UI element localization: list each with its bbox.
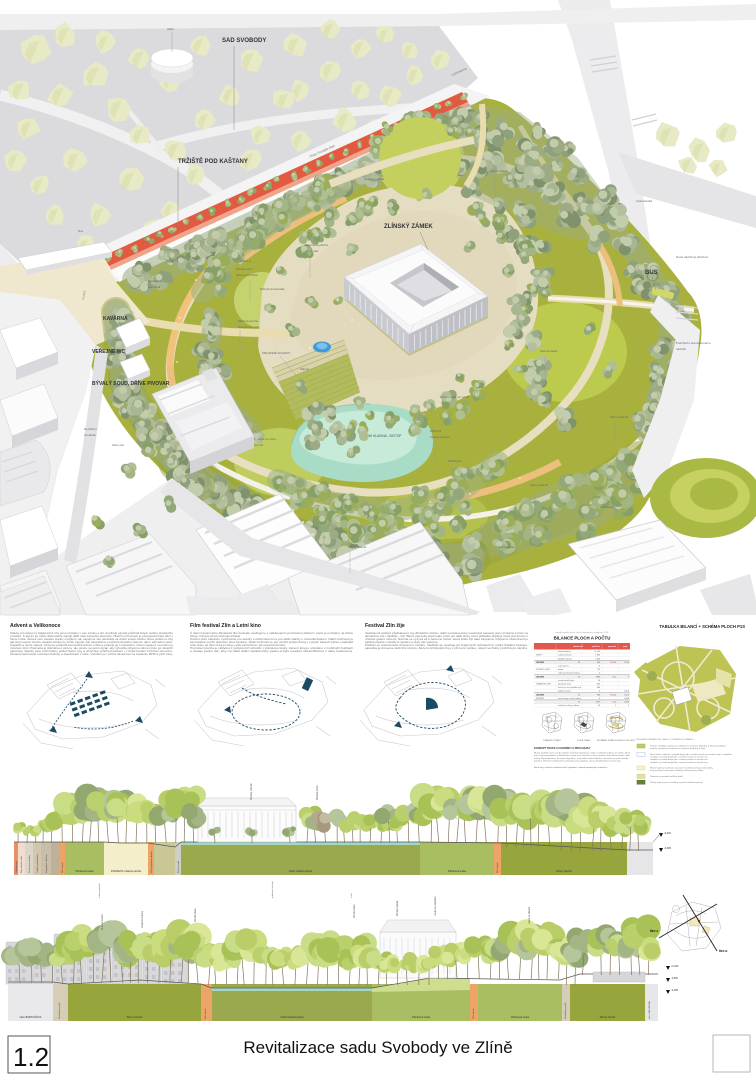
svg-text:Stinný trávník: Stinný trávník — [610, 415, 629, 419]
svg-text:Zpevněná plocha: Zpevněná plocha — [305, 243, 328, 247]
svg-text:mlatové plochy: mlatové plochy — [558, 650, 571, 653]
svg-text:KAVÁRNA: KAVÁRNA — [103, 315, 128, 322]
svg-text:Pobytová s pěší: Pobytová s pěší — [238, 325, 260, 329]
svg-text:vodní prvek okolo fontány: vodní prvek okolo fontány — [558, 672, 580, 675]
svg-text:dětem pro hřiště: dětem pro hřiště — [236, 273, 258, 277]
svg-text:Altán: Altán — [167, 27, 174, 31]
svg-text:CELKEM: CELKEM — [536, 662, 544, 664]
svg-text:BILANCE PLOCH A POČTU: BILANCE PLOCH A POČTU — [554, 636, 611, 641]
svg-text:BUS: BUS — [645, 270, 658, 276]
svg-text:chodníku: chodníku — [84, 433, 97, 437]
svg-text:Podchod k autobusovému: Podchod k autobusovému — [676, 341, 711, 345]
svg-text:nádraží: nádraží — [676, 347, 686, 351]
svg-text:BÝVALÝ SOUD, DŘÍVE PIVOVAR: BÝVALÝ SOUD, DŘÍVE PIVOVAR — [92, 379, 170, 387]
svg-text:Cyklostezka: Cyklostezka — [636, 199, 653, 203]
svg-text:počet ks: počet ks — [592, 645, 600, 648]
svg-text:plocha m2: plocha m2 — [573, 646, 582, 648]
svg-text:Pousté zóny: Pousté zóny — [236, 267, 253, 271]
svg-text:1 850: 1 850 — [595, 655, 600, 657]
svg-text:Film festival Zlín a Letní kin: Film festival Zlín a Letní kino — [190, 623, 261, 629]
svg-text:Akce ve stínu: Akce ve stínu — [258, 437, 276, 441]
svg-text:zůstává zachována možnost obsl: zůstává zachována možnost obsluhy a záso… — [10, 653, 173, 656]
svg-text:Festival Zlín žije: Festival Zlín žije — [365, 623, 405, 629]
svg-text:100,0: 100,0 — [624, 662, 629, 664]
svg-text:dlážděné plochy: dlážděné plochy — [558, 658, 572, 660]
svg-text:stromů: stromů — [254, 443, 264, 447]
svg-text:prémiová: prémiová — [148, 285, 161, 289]
svg-text:Nově navržený přechod: Nově navržený přechod — [676, 255, 708, 259]
svg-text:ZÓNA B: ZÓNA B — [430, 428, 441, 433]
svg-text:biotop: biotop — [558, 668, 563, 671]
svg-text:Stinný trávník: Stinný trávník — [530, 483, 549, 487]
svg-text:Povrchová: Povrchová — [148, 279, 163, 283]
svg-text:akustika je tlumena okolními s: akustika je tlumena okolními stromy. Záz… — [365, 647, 528, 650]
svg-text:Mlatová plocha: Mlatová plocha — [364, 177, 385, 181]
svg-text:4: 4 — [599, 666, 600, 668]
svg-text:Stinný trávník: Stinný trávník — [348, 545, 367, 549]
svg-text:Rozšíření: Rozšíření — [84, 427, 97, 431]
svg-text:Mlatová plocha: Mlatová plocha — [238, 319, 259, 323]
svg-text:Pikniková: Pikniková — [448, 459, 461, 463]
svg-text:Stinný trávník: Stinný trávník — [490, 169, 509, 173]
svg-text:CESTY: CESTY — [536, 655, 543, 657]
svg-text:procenta: procenta — [608, 645, 617, 648]
svg-text:pro a násl.: pro a násl. — [305, 249, 319, 253]
svg-text:KRAJINNÉ SCHODY: KRAJINNÉ SCHODY — [262, 350, 291, 355]
svg-text:Advent a Velikonoce: Advent a Velikonoce — [10, 623, 61, 629]
svg-text:VODNÍ PLOCHY: VODNÍ PLOCHY — [536, 668, 551, 671]
svg-text:Bus: Bus — [78, 229, 84, 233]
svg-text:SAD SVOBODY: SAD SVOBODY — [222, 38, 266, 44]
svg-text:Zastávka: Zastávka — [600, 505, 613, 509]
svg-text:14: 14 — [578, 662, 580, 664]
svg-text:2 640: 2 640 — [595, 658, 600, 660]
svg-text:asfaltové plochy: asfaltové plochy — [558, 654, 572, 657]
svg-text:VEŘEJNÉ WC: VEŘEJNÉ WC — [92, 347, 125, 355]
svg-text:tabulka výměr ploch sadu Svobo: tabulka výměr ploch sadu Svobody po revi… — [556, 631, 609, 634]
svg-text:Stinná trasa: Stinná trasa — [498, 545, 514, 549]
svg-text:u okraje parku tak, aby neruši: u okraje parku tak, aby nerušilo další n… — [190, 650, 353, 653]
svg-text:vodní plocha: vodní plocha — [558, 666, 570, 668]
svg-text:100,00: 100,00 — [610, 662, 616, 664]
svg-text:Pobytová travnatá: Pobytová travnatá — [260, 287, 285, 291]
svg-text:Mola k vodě a k oddih: Mola k vodě a k oddih — [440, 395, 470, 399]
svg-text:4: 4 — [599, 673, 600, 675]
svg-text:Slunná louka: Slunná louka — [540, 349, 558, 353]
svg-text:940: 940 — [597, 662, 600, 664]
svg-text:ZÓNA A: ZÓNA A — [240, 258, 251, 263]
svg-text:ZLÍNSKÝ ZÁMEK: ZLÍNSKÝ ZÁMEK — [384, 222, 433, 230]
svg-text:TRŽIŠTĚ POD KAŠTANY: TRŽIŠTĚ POD KAŠTANY — [178, 157, 248, 165]
svg-text:Stinná: Stinná — [300, 367, 309, 371]
svg-text:770: 770 — [597, 669, 600, 671]
svg-text:Klidový prostor: Klidový prostor — [430, 435, 450, 439]
svg-text:Akce ulic: Akce ulic — [112, 443, 125, 447]
svg-text:11 450: 11 450 — [594, 651, 600, 653]
